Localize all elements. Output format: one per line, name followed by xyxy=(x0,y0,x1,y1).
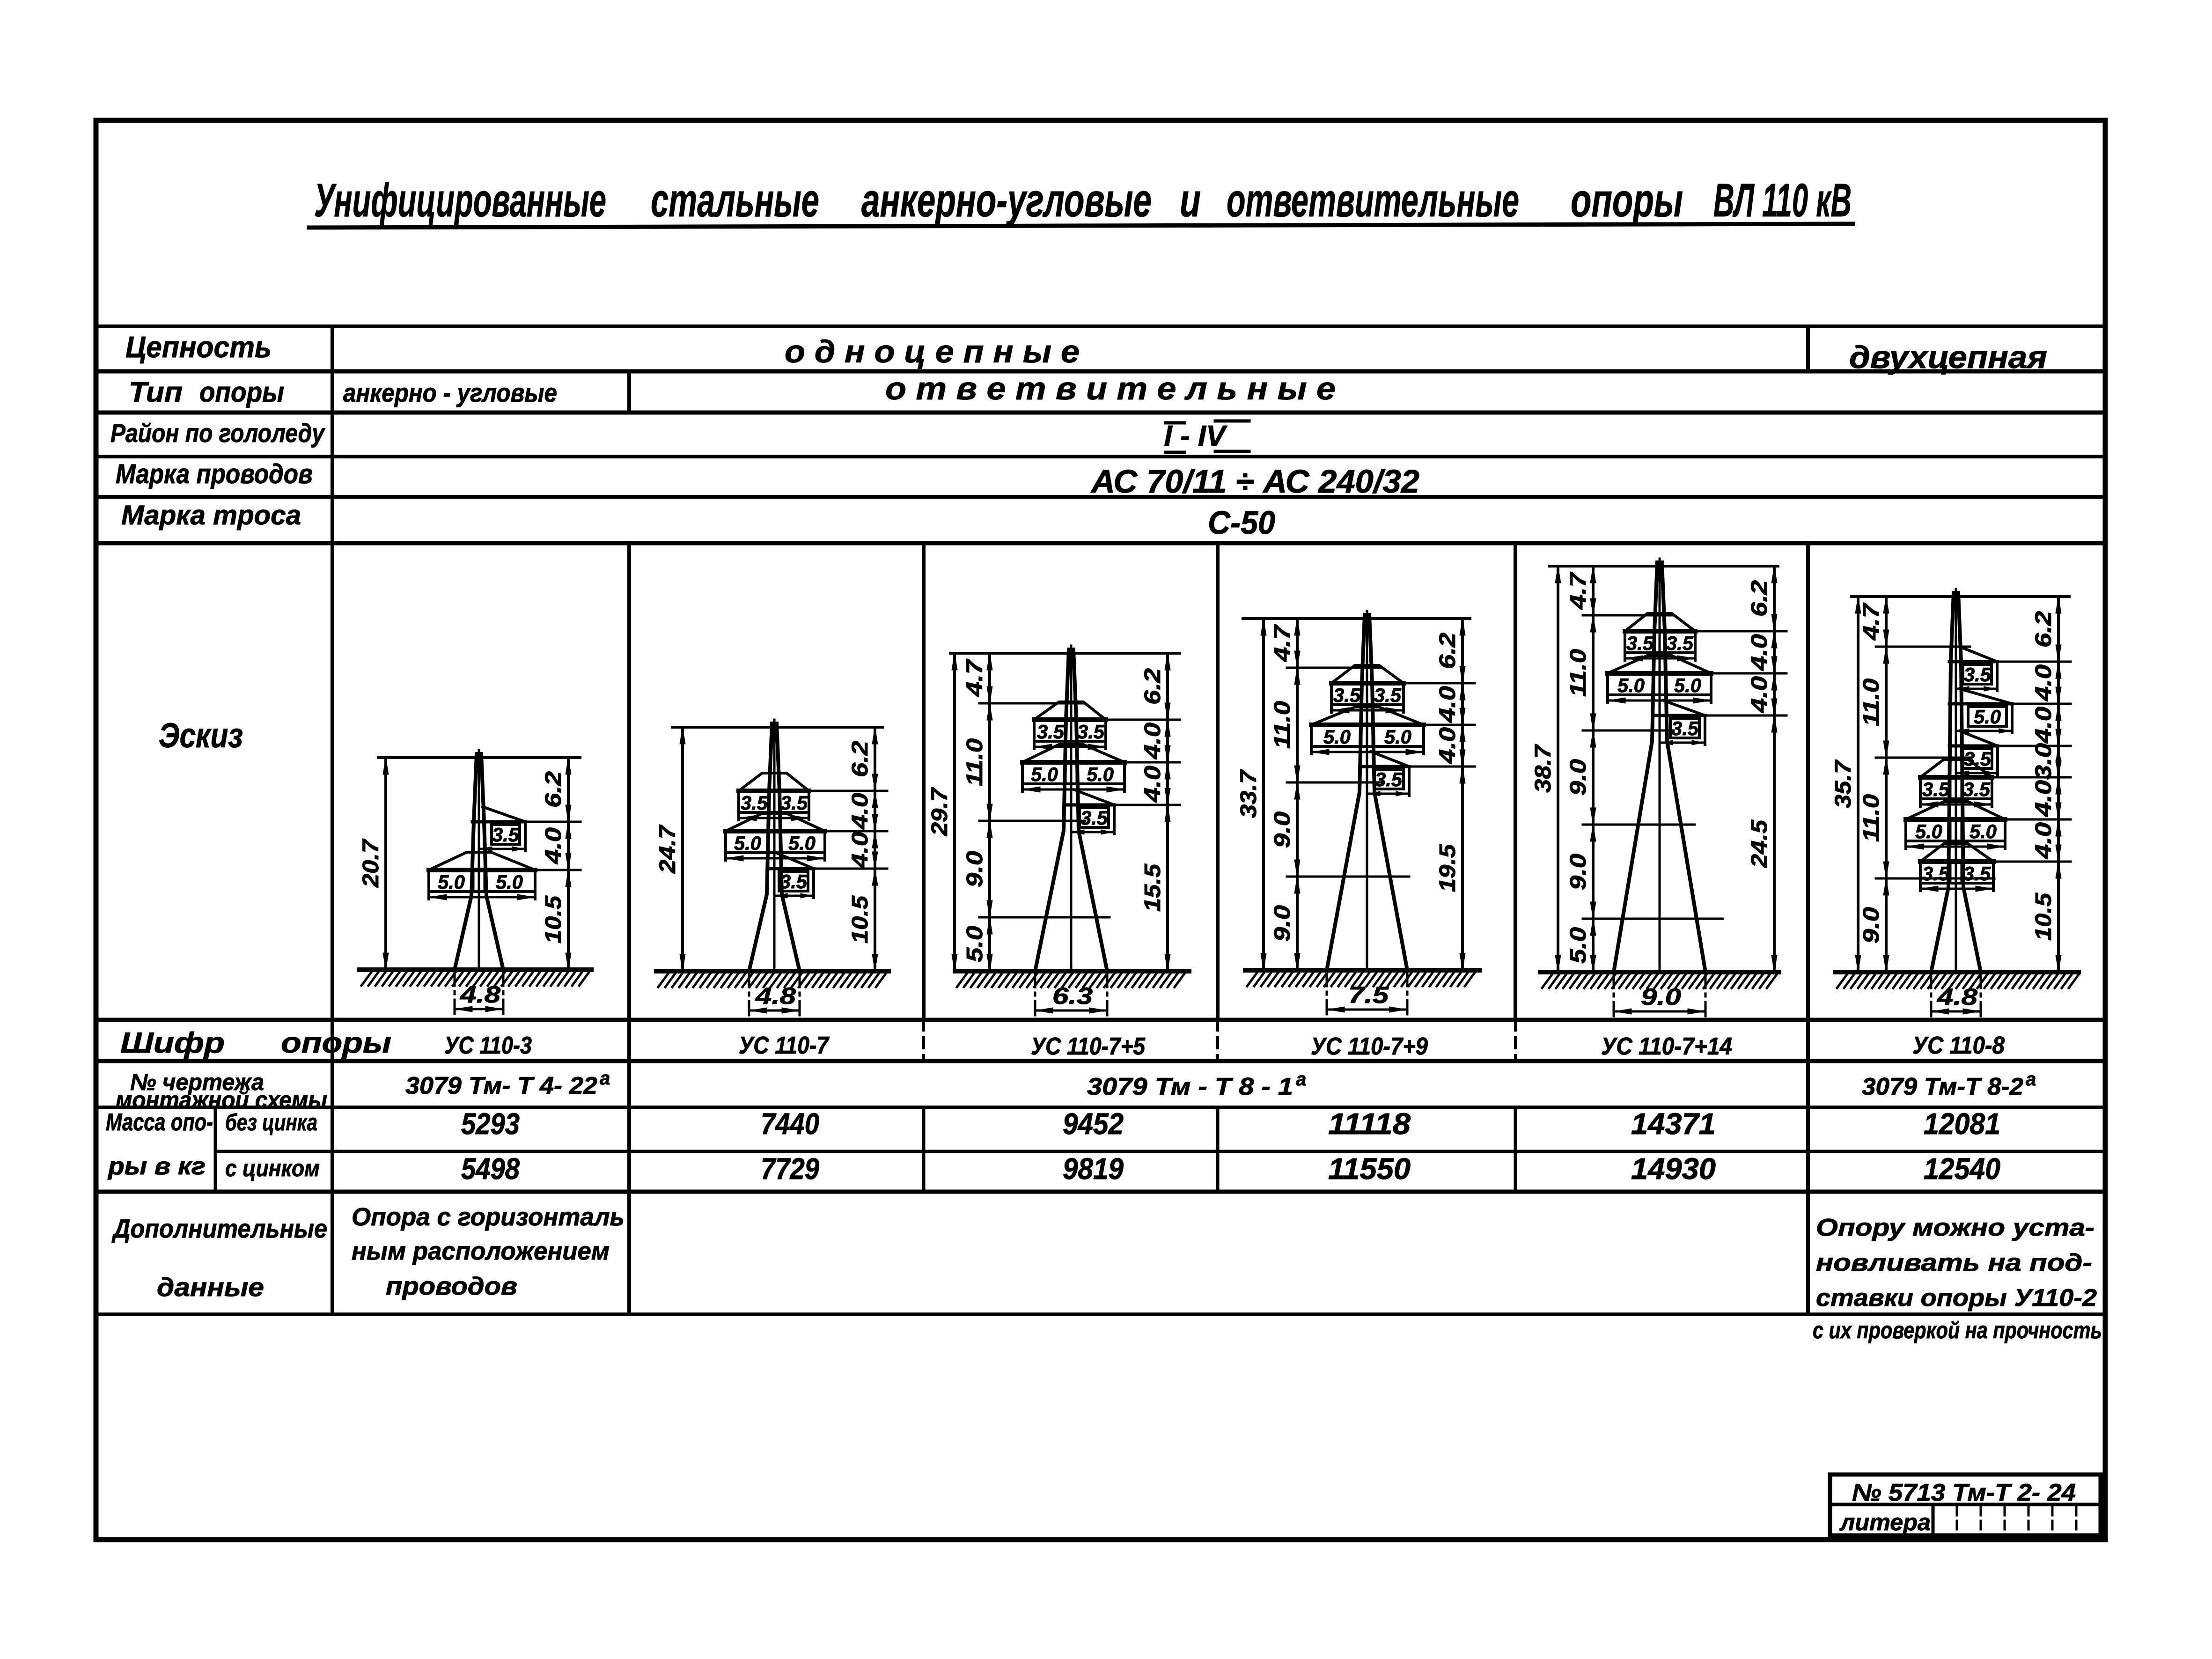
svg-text:новливать на под-: новливать на под- xyxy=(1816,1249,2092,1276)
svg-text:6.2: 6.2 xyxy=(1140,668,1165,705)
svg-text:анкерно - угловые: анкерно - угловые xyxy=(343,378,557,407)
svg-text:6.2: 6.2 xyxy=(1435,633,1460,669)
svg-text:ставки опоры У110-2: ставки опоры У110-2 xyxy=(1816,1284,2097,1312)
svg-text:Эскиз: Эскиз xyxy=(159,716,243,755)
svg-text:5.0: 5.0 xyxy=(438,871,465,893)
svg-text:4.0: 4.0 xyxy=(1140,723,1165,760)
svg-text:3.5: 3.5 xyxy=(780,870,808,892)
svg-text:3079 Тм - Т 8 - 1: 3079 Тм - Т 8 - 1 xyxy=(1087,1073,1293,1100)
svg-text:19.5: 19.5 xyxy=(1435,844,1460,892)
svg-text:3.5: 3.5 xyxy=(1374,684,1402,706)
svg-text:ры в кг: ры в кг xyxy=(107,1153,206,1180)
svg-text:УС 110-7+5: УС 110-7+5 xyxy=(1031,1033,1146,1060)
svg-text:и: и xyxy=(1180,174,1201,227)
svg-text:7.5: 7.5 xyxy=(1348,982,1389,1008)
svg-text:5.0: 5.0 xyxy=(1969,820,1997,842)
svg-text:6.2: 6.2 xyxy=(848,741,873,777)
svg-text:10.5: 10.5 xyxy=(848,895,873,944)
svg-text:7729: 7729 xyxy=(761,1152,819,1186)
svg-text:5.0: 5.0 xyxy=(1915,820,1942,842)
svg-text:Масса опо-: Масса опо- xyxy=(106,1109,213,1136)
svg-text:4.0: 4.0 xyxy=(848,832,873,869)
svg-text:УС 110-7: УС 110-7 xyxy=(739,1032,830,1059)
svg-text:УС 110-3: УС 110-3 xyxy=(444,1032,532,1059)
svg-text:анкерно-угловые: анкерно-угловые xyxy=(861,174,1152,227)
svg-text:3.5: 3.5 xyxy=(1922,863,1950,885)
svg-text:Тип: Тип xyxy=(129,376,183,408)
svg-text:3.5: 3.5 xyxy=(1922,778,1950,800)
svg-text:29.7: 29.7 xyxy=(927,787,952,836)
svg-text:проводов: проводов xyxy=(386,1272,517,1300)
svg-text:Опору можно уста-: Опору можно уста- xyxy=(1816,1214,2094,1241)
svg-text:5.0: 5.0 xyxy=(1674,674,1701,696)
svg-text:5.0: 5.0 xyxy=(963,926,987,962)
svg-text:4.0: 4.0 xyxy=(848,793,873,830)
svg-text:3.5: 3.5 xyxy=(1077,721,1105,743)
svg-text:9.0: 9.0 xyxy=(1270,811,1295,848)
svg-text:данные: данные xyxy=(157,1272,264,1302)
svg-text:УС 110-7+14: УС 110-7+14 xyxy=(1601,1033,1732,1060)
svg-text:ответвительные: ответвительные xyxy=(1227,174,1519,227)
svg-text:4.8: 4.8 xyxy=(460,981,500,1008)
svg-text:5.0: 5.0 xyxy=(1031,763,1058,785)
svg-text:6.2: 6.2 xyxy=(541,771,566,808)
svg-text:3.5: 3.5 xyxy=(741,792,768,814)
svg-text:3.0: 3.0 xyxy=(2031,743,2056,780)
svg-text:литера: литера xyxy=(1839,1509,1931,1535)
svg-text:4.0: 4.0 xyxy=(2031,664,2056,702)
svg-text:3.5: 3.5 xyxy=(1963,863,1991,885)
svg-text:4.0: 4.0 xyxy=(1747,634,1772,671)
svg-text:14930: 14930 xyxy=(1631,1152,1716,1186)
svg-text:№ 5713 Тм-Т 2- 24: № 5713 Тм-Т 2- 24 xyxy=(1852,1479,2076,1506)
svg-text:38.7: 38.7 xyxy=(1531,744,1556,793)
svg-text:Дополнительные: Дополнительные xyxy=(111,1214,327,1243)
svg-text:двухцепная: двухцепная xyxy=(1849,339,2047,375)
svg-text:4.7: 4.7 xyxy=(963,658,987,697)
svg-text:3.5: 3.5 xyxy=(1333,684,1361,706)
svg-text:10.5: 10.5 xyxy=(541,895,566,944)
svg-text:9.0: 9.0 xyxy=(963,851,987,887)
svg-text:о т в е т в и т е л ь н ы е: о т в е т в и т е л ь н ы е xyxy=(885,371,1336,406)
svg-text:4.0: 4.0 xyxy=(541,827,566,865)
svg-text:5.0: 5.0 xyxy=(496,871,523,893)
svg-text:3.5: 3.5 xyxy=(1080,807,1108,829)
svg-text:4.0: 4.0 xyxy=(2031,822,2056,860)
svg-text:6.2: 6.2 xyxy=(2031,611,2056,648)
svg-text:С-50: С-50 xyxy=(1208,504,1275,541)
svg-text:11.0: 11.0 xyxy=(1859,794,1884,842)
svg-text:5.0: 5.0 xyxy=(734,832,761,854)
svg-text:10.5: 10.5 xyxy=(2031,892,2056,941)
svg-text:7440: 7440 xyxy=(761,1107,819,1141)
svg-text:УС 110-8: УС 110-8 xyxy=(1912,1032,2005,1059)
svg-text:без цинка: без цинка xyxy=(225,1109,317,1135)
svg-text:5.0: 5.0 xyxy=(1087,763,1114,785)
svg-text:4.7: 4.7 xyxy=(1270,624,1295,662)
svg-text:5.0: 5.0 xyxy=(1974,706,2001,728)
svg-text:4.0: 4.0 xyxy=(2031,780,2056,818)
svg-text:Опора с горизонталь: Опора с горизонталь xyxy=(352,1203,625,1231)
svg-text:а: а xyxy=(2026,1069,2036,1090)
svg-text:Марка троса: Марка троса xyxy=(121,500,301,531)
svg-text:4.7: 4.7 xyxy=(1859,602,1884,641)
svg-text:4.0: 4.0 xyxy=(1435,727,1460,765)
svg-text:а: а xyxy=(600,1068,610,1089)
svg-text:стальные: стальные xyxy=(651,174,819,227)
svg-text:3.5: 3.5 xyxy=(780,792,808,814)
svg-text:11.0: 11.0 xyxy=(1859,678,1884,726)
svg-text:4.0: 4.0 xyxy=(1140,766,1165,803)
svg-text:УС 110-7+9: УС 110-7+9 xyxy=(1311,1033,1428,1060)
svg-text:9.0: 9.0 xyxy=(1270,905,1295,942)
svg-text:ным расположением: ным расположением xyxy=(352,1237,610,1265)
svg-text:3.5: 3.5 xyxy=(1964,664,1992,686)
svg-text:о д н о ц е п н ы е: о д н о ц е п н ы е xyxy=(785,334,1080,369)
svg-text:5498: 5498 xyxy=(461,1152,520,1186)
svg-text:11118: 11118 xyxy=(1328,1107,1411,1141)
svg-text:4.0: 4.0 xyxy=(1747,676,1772,714)
svg-text:11.0: 11.0 xyxy=(1566,649,1591,697)
svg-text:24.5: 24.5 xyxy=(1747,819,1772,869)
svg-text:9.0: 9.0 xyxy=(1641,984,1681,1010)
svg-text:3079 Тм- Т 4- 22: 3079 Тм- Т 4- 22 xyxy=(405,1072,597,1099)
svg-text:9.0: 9.0 xyxy=(1566,854,1591,890)
svg-text:9.0: 9.0 xyxy=(1566,759,1591,796)
svg-text:12540: 12540 xyxy=(1924,1152,2000,1186)
svg-text:опоры: опоры xyxy=(1571,174,1683,227)
svg-text:4.7: 4.7 xyxy=(1566,571,1591,610)
svg-text:11.0: 11.0 xyxy=(963,738,987,786)
svg-text:35.7: 35.7 xyxy=(1831,759,1856,808)
svg-text:11550: 11550 xyxy=(1328,1152,1411,1186)
svg-text:11.0: 11.0 xyxy=(1270,701,1295,749)
svg-text:3.5: 3.5 xyxy=(1626,632,1654,654)
svg-text:а: а xyxy=(1296,1069,1306,1090)
svg-text:5.0: 5.0 xyxy=(1617,674,1645,696)
svg-text:I - IV: I - IV xyxy=(1164,420,1228,452)
svg-text:4.8: 4.8 xyxy=(755,983,796,1009)
svg-text:6.3: 6.3 xyxy=(1052,983,1093,1009)
svg-text:5.0: 5.0 xyxy=(1323,726,1351,748)
svg-text:Район по гололеду: Район по гололеду xyxy=(110,418,325,448)
svg-text:с цинком: с цинком xyxy=(225,1155,320,1181)
svg-text:3.5: 3.5 xyxy=(1963,778,1991,800)
svg-text:АС 70/11 ÷ АС 240/32: АС 70/11 ÷ АС 240/32 xyxy=(1090,463,1419,500)
svg-text:5.0: 5.0 xyxy=(788,832,816,854)
svg-text:15.5: 15.5 xyxy=(1140,863,1165,912)
svg-text:с их проверкой на прочность: с их проверкой на прочность xyxy=(1813,1317,2102,1343)
svg-text:опоры: опоры xyxy=(281,1027,391,1059)
svg-text:3.5: 3.5 xyxy=(1037,721,1065,743)
svg-text:ВЛ 110 кВ: ВЛ 110 кВ xyxy=(1713,174,1852,227)
svg-text:9452: 9452 xyxy=(1063,1107,1124,1141)
svg-text:Шифр: Шифр xyxy=(120,1027,225,1059)
svg-text:3079 Тм-Т 8-2: 3079 Тм-Т 8-2 xyxy=(1862,1073,2023,1100)
svg-text:5.0: 5.0 xyxy=(1566,927,1591,964)
svg-text:14371: 14371 xyxy=(1631,1107,1716,1141)
svg-text:20.7: 20.7 xyxy=(359,838,383,888)
svg-text:5293: 5293 xyxy=(461,1107,520,1141)
svg-text:5.0: 5.0 xyxy=(1384,726,1411,748)
svg-text:4.0: 4.0 xyxy=(2031,707,2056,744)
svg-text:4.8: 4.8 xyxy=(1937,984,1977,1010)
svg-text:4.0: 4.0 xyxy=(1435,686,1460,723)
svg-text:3.5: 3.5 xyxy=(1671,717,1699,739)
svg-text:9819: 9819 xyxy=(1063,1152,1124,1186)
svg-text:6.2: 6.2 xyxy=(1747,580,1772,617)
svg-text:33.7: 33.7 xyxy=(1236,769,1261,818)
svg-text:опоры: опоры xyxy=(199,376,284,408)
svg-text:3.5: 3.5 xyxy=(1666,632,1694,654)
svg-text:9.0: 9.0 xyxy=(1859,907,1884,944)
svg-text:3.5: 3.5 xyxy=(1375,768,1403,790)
svg-text:Цепность: Цепность xyxy=(125,330,272,364)
svg-text:12081: 12081 xyxy=(1924,1107,2000,1141)
svg-text:Унифицированные: Унифицированные xyxy=(314,174,606,227)
svg-text:Марка проводов: Марка проводов xyxy=(116,459,313,489)
svg-text:24.7: 24.7 xyxy=(655,824,680,874)
svg-text:3.5: 3.5 xyxy=(492,824,520,846)
